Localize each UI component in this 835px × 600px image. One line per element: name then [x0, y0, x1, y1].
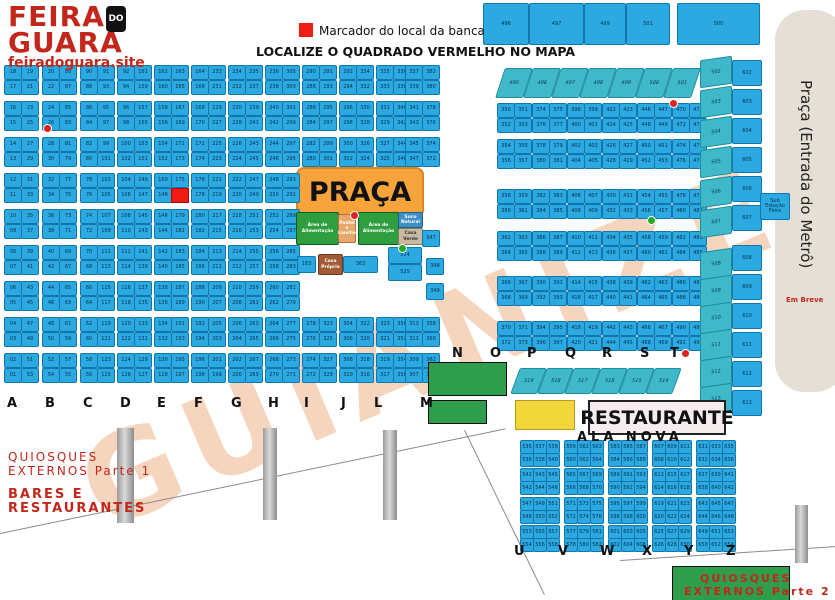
stall-cell: 276 — [302, 332, 320, 347]
stall-cell: 331 — [376, 101, 394, 116]
em-breve-label: Em Breve — [786, 296, 823, 304]
ala-nova-cell: 626 — [652, 538, 666, 552]
stall-cell: 462 — [637, 276, 655, 291]
stall-cell: 375 — [549, 103, 567, 118]
stall-cell: 128 — [154, 368, 172, 383]
stall-cell: 335 — [376, 65, 394, 80]
stall-cell: 45 — [21, 296, 39, 311]
stall-cell: 390 — [532, 276, 550, 291]
stall-cell: 451 — [654, 139, 672, 154]
stall-cell-side: 503 — [700, 86, 732, 118]
stall-cell: 327 — [319, 353, 337, 368]
ala-nova-cell: 635 — [722, 440, 736, 454]
stall-cell: 139 — [134, 260, 152, 275]
stall-cell: 98 — [117, 116, 135, 131]
stall-cell: 293 — [319, 80, 337, 95]
stall-cell: 292 — [339, 65, 357, 80]
stall-cell: 459 — [654, 231, 672, 246]
stall-cell: 190 — [191, 296, 209, 311]
stall-cell: 302 — [339, 152, 357, 167]
stall-cell: 290 — [302, 65, 320, 80]
legend-marker-label: Marcador do local da banca — [319, 24, 485, 38]
stall-cell: 37 — [21, 224, 39, 239]
stall-cell: 387 — [549, 231, 567, 246]
pillar — [795, 505, 808, 563]
stall-cell: 422 — [602, 103, 620, 118]
stall-cell: 270 — [265, 368, 283, 383]
stall-cell: 34 — [42, 188, 60, 203]
stall-cell: 383 — [549, 189, 567, 204]
stall-cell: 605 — [732, 147, 762, 173]
stall-cell: 602 — [732, 60, 762, 86]
stall-cell: 49 — [21, 332, 39, 347]
stall-cell: 413 — [584, 246, 602, 261]
stall-cell: 429 — [619, 154, 637, 169]
stall-cell: 430 — [602, 189, 620, 204]
stall-cell: 140 — [154, 260, 172, 275]
stall-cell: 67 — [59, 260, 77, 275]
stall-cell: 295 — [319, 101, 337, 116]
stall-cell: 167 — [171, 101, 189, 116]
stall-cell: 353 — [514, 118, 532, 133]
stall-cell-large: 500 — [677, 3, 760, 45]
stall-cell: 307 — [405, 368, 423, 383]
stall-cell: 59 — [59, 332, 77, 347]
stall-cell: 267 — [245, 353, 263, 368]
ala-letter-V: V — [558, 544, 568, 559]
stall-cell: 166 — [191, 80, 209, 95]
stall-cell: 235 — [245, 65, 263, 80]
stall-cell: 63 — [59, 296, 77, 311]
stall-cell: 260 — [265, 281, 283, 296]
stall-cell: 278 — [302, 317, 320, 332]
ala-nova-cell: 628 — [665, 538, 679, 552]
stall-cell: 606 — [732, 176, 762, 202]
stall-cell: 445 — [619, 336, 637, 351]
ala-nova-cell: 591 — [621, 468, 635, 482]
stall-cell: 343 — [405, 116, 423, 131]
stall-cell: 87 — [59, 80, 77, 95]
food-area-block: SucoNatural — [398, 212, 423, 228]
ala-nova-cell: 575 — [590, 497, 604, 511]
ala-nova-cell: 651 — [709, 525, 723, 539]
stall-cell: 202 — [228, 353, 246, 368]
stall-cell: 378 — [532, 139, 550, 154]
pillar — [263, 428, 277, 520]
stall-cell: 225 — [208, 137, 226, 152]
stall-cell: 237 — [245, 80, 263, 95]
ala-nova-cell: 560 — [564, 453, 578, 467]
ala-nova-cell: 645 — [709, 497, 723, 511]
stall-cell: 178 — [191, 188, 209, 203]
stall-cell: 423 — [619, 103, 637, 118]
ala-nova-cell: 596 — [608, 510, 622, 524]
stall-cell: 173 — [171, 152, 189, 167]
stall-cell: 07 — [4, 260, 22, 275]
stall-cell: 366 — [497, 276, 515, 291]
stall-cell: 108 — [117, 209, 135, 224]
stall-cell: 309 — [405, 353, 423, 368]
stall-cell: 463 — [654, 276, 672, 291]
stall-cell: 399 — [584, 103, 602, 118]
stall-cell: 249 — [245, 188, 263, 203]
food-area-block: CasaPrópria — [318, 254, 343, 275]
ala-nova-cell: 546 — [546, 481, 560, 495]
stall-cell-large: 499 — [584, 3, 626, 45]
ala-nova-cell: 623 — [678, 497, 692, 511]
stall-cell: 200 — [228, 368, 246, 383]
stall-cell: 482 — [672, 231, 690, 246]
stall-cell: 138 — [154, 281, 172, 296]
stall-cell: 217 — [208, 209, 226, 224]
ala-nova-cell: 627 — [665, 525, 679, 539]
stall-cell: 325 — [319, 332, 337, 347]
stall-cell: 101 — [97, 152, 115, 167]
stall-cell: 368 — [497, 291, 515, 306]
stall-cell: 364 — [497, 246, 515, 261]
stall-cell: 421 — [584, 336, 602, 351]
stall-cell: 246 — [265, 152, 283, 167]
stall-cell: 103 — [97, 173, 115, 188]
stall-cell: 415 — [584, 276, 602, 291]
stall-cell: 223 — [208, 152, 226, 167]
stall-cell: 93 — [97, 80, 115, 95]
stall-cell: 378 — [422, 101, 440, 116]
column-letter-H: H — [268, 396, 279, 411]
stall-cell: 146 — [154, 209, 172, 224]
ala-nova-cell: 629 — [678, 525, 692, 539]
stall-cell: 71 — [59, 224, 77, 239]
stall-cell: 102 — [117, 152, 135, 167]
ala-nova-cell: 613 — [652, 468, 666, 482]
ala-letter-W: W — [600, 544, 614, 559]
ala-nova-cell: 633 — [709, 440, 723, 454]
stall-cell: 113 — [97, 260, 115, 275]
stall-cell: 15 — [4, 116, 22, 131]
ala-nova-cell: 579 — [577, 525, 591, 539]
aisle-letter-T: T — [670, 346, 679, 361]
ala-nova-cell: 639 — [709, 468, 723, 482]
stall-cell: 374 — [532, 103, 550, 118]
stall-cell: 30 — [42, 152, 60, 167]
stall-cell: 46 — [42, 296, 60, 311]
stall-cell: 193 — [171, 332, 189, 347]
stall-cell: 218 — [228, 209, 246, 224]
special-stall-cell: 183 — [297, 256, 316, 273]
stall-cell: 432 — [602, 204, 620, 219]
stall-cell: 354 — [497, 139, 515, 154]
stall-cell: 58 — [80, 353, 98, 368]
stall-cell: 176 — [191, 173, 209, 188]
stall-cell: 388 — [532, 246, 550, 261]
column-letter-I: I — [304, 396, 309, 411]
ala-nova-cell: 535 — [520, 440, 534, 454]
stall-cell: 54 — [42, 368, 60, 383]
stall-cell: 228 — [228, 116, 246, 131]
stall-cell: 160 — [154, 80, 172, 95]
stall-cell: 28 — [42, 137, 60, 152]
stall-cell: 372 — [422, 152, 440, 167]
ala-nova-cell: 556 — [533, 538, 547, 552]
stall-cell: 264 — [265, 317, 283, 332]
stall-cell: 106 — [117, 188, 135, 203]
stall-cell: 42 — [42, 260, 60, 275]
stall-cell: 326 — [356, 137, 374, 152]
stall-cell: 17 — [4, 80, 22, 95]
stall-cell: 57 — [59, 353, 77, 368]
stall-cell: 205 — [208, 317, 226, 332]
stall-cell: 320 — [356, 332, 374, 347]
stall-cell: 25 — [21, 116, 39, 131]
stall-cell: 357 — [514, 154, 532, 169]
stall-cell: 304 — [339, 317, 357, 332]
stall-cell: 272 — [302, 368, 320, 383]
ala-letter-Z: Z — [726, 544, 735, 559]
stall-cell: 424 — [602, 118, 620, 133]
stall-cell: 68 — [80, 260, 98, 275]
stall-cell: 47 — [21, 317, 39, 332]
stall-cell: 400 — [567, 118, 585, 133]
stall-cell: 360 — [422, 332, 440, 347]
stall-cell: 212 — [228, 260, 246, 275]
stall-cell: 50 — [42, 332, 60, 347]
stall-cell: 385 — [549, 204, 567, 219]
stall-cell: 274 — [302, 353, 320, 368]
stall-cell: 316 — [356, 368, 374, 383]
stall-cell: 490 — [672, 321, 690, 336]
stall-cell: 255 — [245, 245, 263, 260]
stall-cell: 66 — [80, 281, 98, 296]
red-location-marker — [171, 188, 189, 203]
ala-nova-cell: 557 — [546, 525, 560, 539]
stall-cell: 80 — [80, 152, 98, 167]
stall-cell: 153 — [134, 137, 152, 152]
stall-cell: 136 — [154, 296, 172, 311]
stall-cell: 186 — [191, 260, 209, 275]
ala-letter-X: X — [642, 544, 652, 559]
stall-cell: 104 — [117, 173, 135, 188]
ala-nova-cell: 617 — [678, 468, 692, 482]
stall-cell: 293 — [282, 173, 300, 188]
stall-cell: 13 — [4, 152, 22, 167]
stall-cell: 418 — [567, 321, 585, 336]
stall-cell-side: 507 — [700, 206, 732, 238]
stall-cell: 157 — [134, 101, 152, 116]
stall-cell-side: 504 — [700, 116, 732, 148]
stall-cell: 361 — [514, 204, 532, 219]
stall-cell: 207 — [208, 296, 226, 311]
food-area-block: CasaVerde — [398, 228, 423, 245]
stall-cell: 334 — [356, 65, 374, 80]
ala-nova-cell: 547 — [520, 497, 534, 511]
stall-cell: 01 — [4, 368, 22, 383]
stall-cell: 241 — [245, 116, 263, 131]
stall-cell: 303 — [282, 80, 300, 95]
stall-cell: 83 — [59, 116, 77, 131]
stall-cell: 125 — [97, 368, 115, 383]
ala-nova-cell: 536 — [520, 453, 534, 467]
logo-do-badge: DO — [106, 6, 126, 32]
stall-cell: 232 — [228, 80, 246, 95]
stall-cell: 450 — [637, 139, 655, 154]
stall-cell: 43 — [21, 281, 39, 296]
stall-cell: 298 — [339, 116, 357, 131]
aisle-letter-N: N — [452, 346, 463, 361]
stall-cell: 288 — [302, 80, 320, 95]
stall-cell: 402 — [567, 139, 585, 154]
stall-cell: 305 — [282, 65, 300, 80]
stall-cell: 392 — [532, 291, 550, 306]
stall-cell: 27 — [21, 137, 39, 152]
stall-cell: 295 — [282, 152, 300, 167]
stall-cell: 455 — [654, 189, 672, 204]
ala-nova-cell: 595 — [608, 497, 622, 511]
stall-cell: 454 — [637, 189, 655, 204]
stall-cell: 131 — [134, 332, 152, 347]
stall-cell: 61 — [59, 317, 77, 332]
stall-cell: 377 — [549, 118, 567, 133]
stall-cell: 333 — [376, 80, 394, 95]
stall-cell: 132 — [154, 332, 172, 347]
stall-cell: 294 — [339, 80, 357, 95]
stall-cell: 435 — [619, 231, 637, 246]
stall-cell: 317 — [376, 368, 394, 383]
stall-cell: 417 — [584, 291, 602, 306]
stall-cell: 95 — [97, 101, 115, 116]
stall-cell: 458 — [637, 231, 655, 246]
stall-cell: 120 — [117, 317, 135, 332]
stall-cell: 347 — [405, 152, 423, 167]
stall-cell: 195 — [171, 353, 189, 368]
stall-cell: 409 — [584, 204, 602, 219]
stall-cell: 351 — [514, 103, 532, 118]
stall-cell: 369 — [514, 291, 532, 306]
ala-nova-cell: 573 — [577, 497, 591, 511]
stall-cell: 324 — [356, 152, 374, 167]
stall-cell: 147 — [134, 188, 152, 203]
stall-cell: 199 — [208, 368, 226, 383]
stall-cell: 318 — [356, 353, 374, 368]
stall-cell: 411 — [584, 231, 602, 246]
stall-cell: 301 — [282, 101, 300, 116]
feira-do-guara-map: GUIANIZE FEIRA GUARA DO feiradoguara.sit… — [0, 0, 835, 600]
stall-cell: 204 — [228, 332, 246, 347]
ala-nova-cell: 624 — [678, 510, 692, 524]
stall-cell: 21 — [21, 80, 39, 95]
stall-cell: 275 — [282, 332, 300, 347]
stall-cell: 201 — [208, 353, 226, 368]
stall-cell: 345 — [405, 137, 423, 152]
stall-cell: 39 — [21, 245, 39, 260]
stall-cell: 227 — [208, 116, 226, 131]
stall-cell: 360 — [497, 204, 515, 219]
stall-cell: 74 — [80, 209, 98, 224]
ala-nova-label: ALA NOVA — [577, 430, 683, 445]
stall-cell: 437 — [619, 246, 637, 261]
ala-nova-cell: 625 — [652, 525, 666, 539]
stall-cell: 213 — [208, 245, 226, 260]
stall-cell: 198 — [191, 368, 209, 383]
stall-cell: 408 — [567, 204, 585, 219]
green-area-1 — [428, 362, 507, 396]
stall-cell: 296 — [339, 101, 357, 116]
stall-cell: 159 — [134, 80, 152, 95]
stall-cell: 23 — [21, 101, 39, 116]
ala-nova-cell: 600 — [634, 510, 648, 524]
stall-cell: 109 — [97, 224, 115, 239]
special-stall-cell: 349 — [426, 283, 444, 300]
stall-cell: 244 — [265, 137, 283, 152]
stall-cell: 403 — [584, 139, 602, 154]
stall-cell: 431 — [619, 189, 637, 204]
ala-nova-cell: 599 — [634, 497, 648, 511]
stall-cell: 107 — [97, 209, 115, 224]
stall-cell: 321 — [376, 332, 394, 347]
column-letter-L: L — [374, 396, 382, 411]
stall-cell: 474 — [672, 139, 690, 154]
stall-cell: 359 — [514, 189, 532, 204]
stall-cell: 248 — [265, 173, 283, 188]
stall-cell: 376 — [532, 118, 550, 133]
column-letter-G: G — [231, 396, 242, 411]
stall-cell: 261 — [245, 296, 263, 311]
ala-nova-cell: 647 — [722, 497, 736, 511]
stall-cell: 404 — [567, 154, 585, 169]
special-stall-cell: 347 — [422, 230, 440, 247]
ala-nova-cell: 589 — [608, 468, 622, 482]
stall-cell: 181 — [171, 224, 189, 239]
stall-cell: 327 — [376, 137, 394, 152]
stall-cell: 99 — [97, 137, 115, 152]
stall-cell: 135 — [134, 296, 152, 311]
stall-cell: 457 — [654, 204, 672, 219]
stall-cell: 79 — [59, 152, 77, 167]
stall-cell: 282 — [302, 137, 320, 152]
stall-cell: 363 — [514, 231, 532, 246]
column-letter-D: D — [120, 396, 131, 411]
stall-cell: 111 — [97, 245, 115, 260]
stall-cell: 339 — [405, 80, 423, 95]
stall-cell: 250 — [265, 188, 283, 203]
stall-cell: 170 — [191, 116, 209, 131]
stall-cell: 197 — [171, 368, 189, 383]
quiosques2-line1: QUIOSQUES — [700, 572, 791, 585]
stall-cell: 609 — [732, 274, 762, 300]
stall-cell: 322 — [356, 317, 374, 332]
ala-nova-cell: 644 — [696, 510, 710, 524]
stall-cell: 384 — [532, 204, 550, 219]
stall-cell: 286 — [302, 101, 320, 116]
stall-cell: 386 — [532, 231, 550, 246]
ala-nova-cell: 551 — [546, 497, 560, 511]
stall-cell: 148 — [154, 188, 172, 203]
stall-cell: 466 — [637, 321, 655, 336]
ala-nova-cell: 545 — [546, 468, 560, 482]
praca-block: PRAÇA — [296, 167, 424, 218]
ala-nova-cell: 574 — [577, 510, 591, 524]
stall-cell: 362 — [497, 231, 515, 246]
stall-cell: 382 — [422, 65, 440, 80]
ala-nova-cell: 537 — [533, 440, 547, 454]
ala-nova-cell: 553 — [520, 525, 534, 539]
stall-cell: 484 — [672, 246, 690, 261]
stall-cell: 382 — [532, 189, 550, 204]
stall-cell: 116 — [117, 281, 135, 296]
stall-cell: 371 — [514, 321, 532, 336]
stall-cell: 380 — [422, 80, 440, 95]
stall-cell: 96 — [117, 101, 135, 116]
stall-cell: 319 — [376, 353, 394, 368]
